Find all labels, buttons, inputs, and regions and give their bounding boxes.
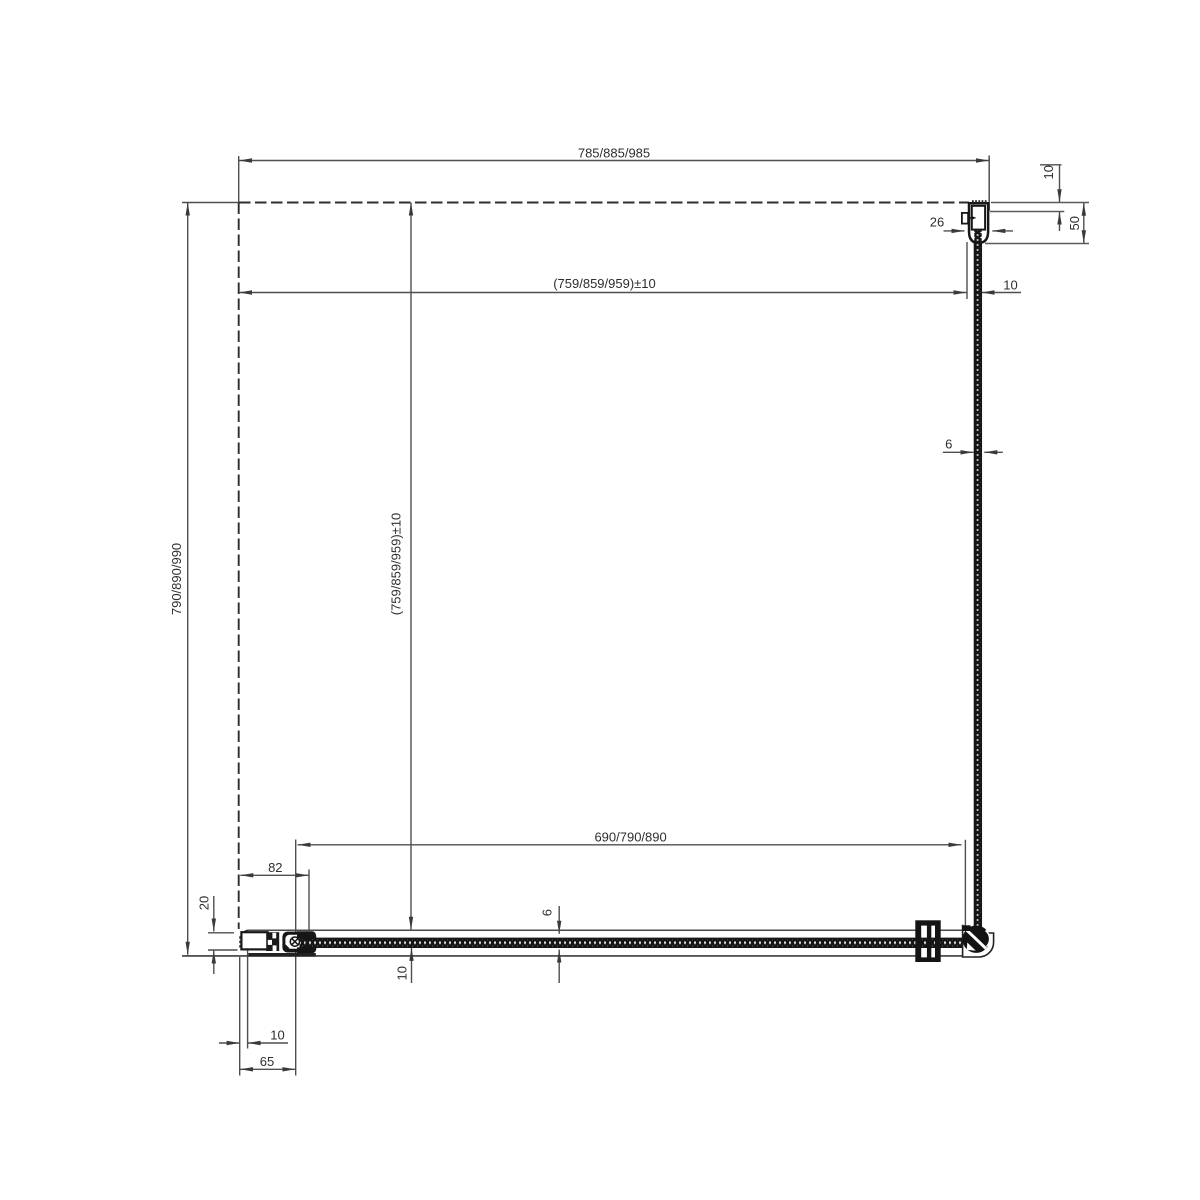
- svg-text:50: 50: [1067, 216, 1082, 230]
- svg-text:26: 26: [930, 215, 944, 230]
- svg-text:20: 20: [196, 896, 211, 910]
- svg-text:82: 82: [268, 860, 282, 875]
- svg-text:(759/859/959)±10: (759/859/959)±10: [389, 513, 404, 616]
- svg-text:10: 10: [1041, 165, 1056, 179]
- svg-text:785/885/985: 785/885/985: [578, 145, 650, 160]
- svg-text:6: 6: [945, 437, 952, 452]
- svg-text:6: 6: [540, 909, 555, 916]
- svg-text:10: 10: [1003, 277, 1017, 292]
- svg-text:10: 10: [270, 1028, 284, 1043]
- svg-text:10: 10: [395, 966, 410, 980]
- svg-text:65: 65: [260, 1054, 274, 1069]
- svg-text:(759/859/959)±10: (759/859/959)±10: [553, 276, 656, 291]
- svg-text:790/890/990: 790/890/990: [169, 543, 184, 615]
- svg-text:690/790/890: 690/790/890: [594, 830, 666, 845]
